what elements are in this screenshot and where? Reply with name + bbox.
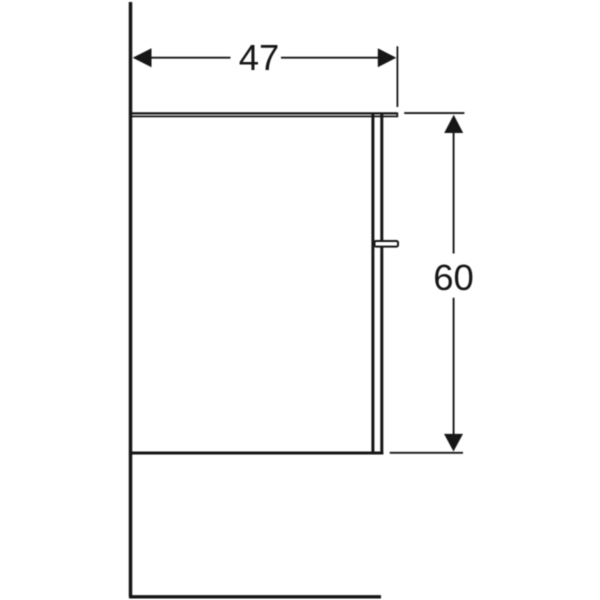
svg-text:60: 60: [433, 257, 474, 298]
svg-text:47: 47: [239, 37, 280, 78]
